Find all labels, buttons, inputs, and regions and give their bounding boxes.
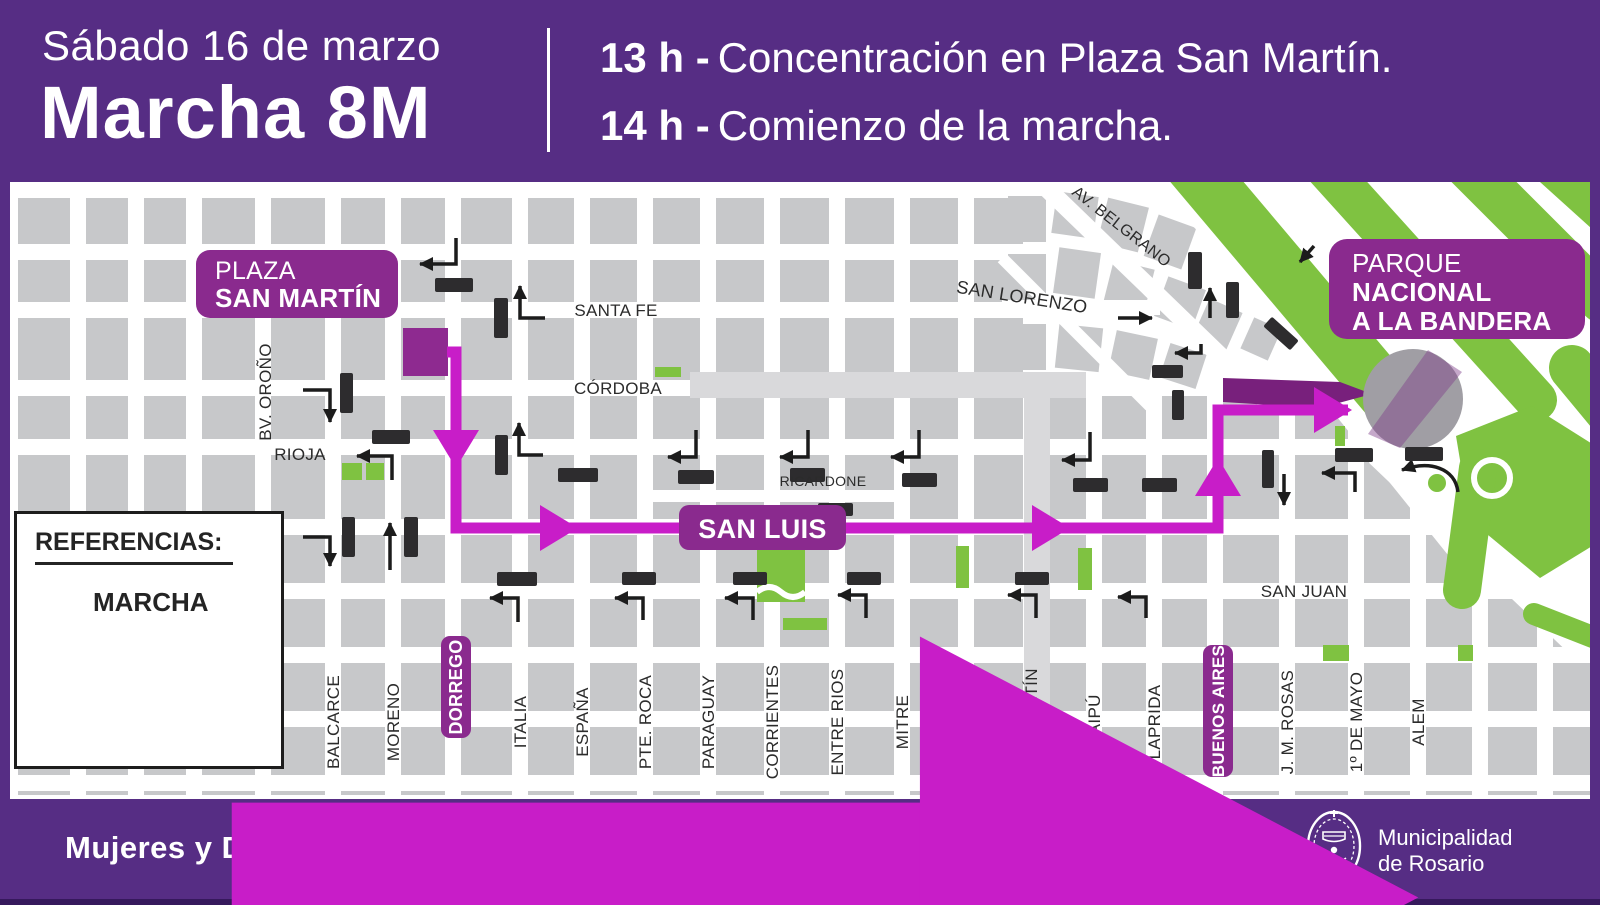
header: Sábado 16 de marzo Marcha 8M 13 h -Conce… (0, 0, 1600, 182)
city-block (271, 455, 325, 519)
city-block (780, 396, 829, 439)
badge-parque-line1: PARQUE (1352, 248, 1462, 278)
badge-plaza-line1: PLAZA (215, 257, 296, 285)
city-block (1364, 535, 1410, 583)
city-block (1162, 535, 1207, 583)
city-block (653, 260, 700, 302)
corte-bar (1015, 572, 1049, 585)
city-block (974, 455, 1023, 519)
city-block (144, 455, 186, 519)
corte-bar (435, 278, 473, 292)
city-block (974, 396, 1023, 439)
city-block (845, 318, 894, 380)
corte-bar (495, 435, 508, 475)
city-block (910, 198, 958, 244)
city-block (86, 396, 128, 439)
street-label-santa-fe: SANTA FE (574, 301, 657, 320)
header-divider (547, 28, 550, 152)
city-block (271, 396, 325, 439)
city-block (271, 198, 325, 244)
city-block (202, 396, 255, 439)
corte-bar (1073, 478, 1108, 492)
corte-bar (497, 572, 537, 586)
corte-bar (342, 517, 355, 557)
city-block (1295, 535, 1348, 583)
city-block (202, 198, 255, 244)
city-block-skewed (1008, 196, 1046, 242)
city-block (18, 260, 70, 302)
city-block (144, 198, 186, 244)
corte-bar (494, 298, 508, 338)
city-block (18, 396, 70, 439)
plaza-green (956, 546, 969, 588)
plaza-green (1078, 548, 1092, 590)
city-block (653, 396, 700, 439)
city-block (653, 198, 700, 244)
poster: Sábado 16 de marzo Marcha 8M 13 h -Conce… (0, 0, 1600, 905)
schedule-time-1: 13 h - (600, 34, 710, 81)
street-label-bv-oro-o: BV. OROÑO (256, 343, 275, 441)
city-block (780, 260, 829, 302)
corte-bar (1172, 390, 1184, 420)
legend-march-label: MARCHA (93, 589, 209, 615)
event-date: Sábado 16 de marzo (42, 22, 441, 70)
corte-bar (1405, 447, 1443, 461)
city-block (780, 318, 829, 380)
street-label-ricardone: RICARDONE (780, 473, 867, 489)
corte-bar (622, 572, 656, 585)
corte-bar (1188, 252, 1202, 289)
legend-box: REFERENCIAS: MARCHA CORTES Se harán a me… (14, 511, 284, 769)
plaza-green (342, 463, 362, 480)
city-block (341, 318, 385, 380)
city-block (18, 455, 70, 519)
city-block (528, 455, 574, 519)
city-block (144, 396, 186, 439)
city-block (1102, 455, 1146, 519)
city-block (18, 318, 70, 380)
map-area: SANTA FECÓRDOBARIOJARICARDONESAN JUANSAN… (10, 182, 1590, 799)
city-block (1102, 535, 1146, 583)
corte-bar (558, 468, 598, 482)
city-block (86, 260, 128, 302)
march-arrow-icon (35, 589, 93, 905)
plaza-san-martin-square (403, 328, 448, 376)
corte-bar (340, 373, 353, 413)
badge-plaza-line2: SAN MARTÍN (215, 283, 381, 313)
city-block (590, 198, 637, 244)
city-block (910, 535, 958, 583)
city-block (716, 396, 764, 439)
city-block (528, 396, 574, 439)
city-block (845, 396, 894, 439)
city-block (401, 198, 445, 244)
city-block (910, 318, 958, 380)
schedule-line-2: 14 h -Comienzo de la marcha. (600, 102, 1392, 150)
corte-bar (678, 470, 714, 484)
city-block (341, 198, 385, 244)
city-block (528, 260, 574, 302)
city-block (590, 318, 637, 380)
city-block (1162, 396, 1207, 439)
plaza-green (655, 367, 681, 377)
city-block (780, 198, 829, 244)
event-title: Marcha 8M (40, 70, 431, 155)
city-block (18, 198, 70, 244)
city-block (590, 396, 637, 439)
city-block (910, 260, 958, 302)
city-block (716, 260, 764, 302)
city-block (1295, 455, 1348, 519)
city-block (86, 198, 128, 244)
street-ricardone (642, 490, 904, 502)
corte-bar (1142, 478, 1177, 492)
corte-bar (1262, 450, 1274, 488)
schedule-text-1: Concentración en Plaza San Martín. (718, 34, 1393, 81)
city-block (401, 455, 445, 519)
city-block (910, 396, 958, 439)
city-block (271, 318, 325, 380)
city-block (716, 318, 764, 380)
city-block (202, 318, 255, 380)
corte-bar (372, 430, 410, 444)
city-block (845, 198, 894, 244)
schedule-line-1: 13 h -Concentración en Plaza San Martín. (600, 34, 1392, 82)
city-block (845, 260, 894, 302)
corte-bar (1152, 365, 1183, 378)
corte-bar (404, 517, 418, 557)
street-label-rioja: RIOJA (274, 445, 326, 464)
schedule-text-2: Comienzo de la marcha. (718, 102, 1173, 149)
city-block (144, 260, 186, 302)
corte-bar (902, 473, 937, 487)
schedule-time-2: 14 h - (600, 102, 710, 149)
schedule: 13 h -Concentración en Plaza San Martín.… (600, 34, 1392, 170)
city-block-skewed (1008, 324, 1046, 370)
badge-parque-line2: NACIONAL (1352, 277, 1492, 307)
corte-bar (1335, 448, 1373, 462)
badge-san-luis-label: SAN LUIS (698, 514, 826, 544)
city-block-skewed (1053, 247, 1101, 298)
badge-parque-line3: A LA BANDERA (1352, 306, 1552, 336)
corte-bar (847, 572, 881, 585)
corte-bar (733, 572, 767, 585)
legend-row-march: MARCHA (35, 589, 281, 905)
city-block (716, 198, 764, 244)
city-block (202, 455, 255, 519)
city-block (144, 318, 186, 380)
corte-bar (1226, 282, 1239, 318)
city-block (528, 318, 574, 380)
city-block (590, 260, 637, 302)
city-block (528, 198, 574, 244)
plaza-green (1335, 426, 1345, 446)
roundabout (1426, 472, 1448, 494)
plaza-green (366, 463, 384, 480)
city-block (86, 318, 128, 380)
city-block (590, 455, 637, 519)
city-block (461, 198, 512, 244)
street-label-c-rdoba: CÓRDOBA (574, 379, 662, 398)
city-block (86, 455, 128, 519)
city-block (1223, 535, 1279, 583)
legend-title: REFERENCIAS: (35, 528, 233, 565)
